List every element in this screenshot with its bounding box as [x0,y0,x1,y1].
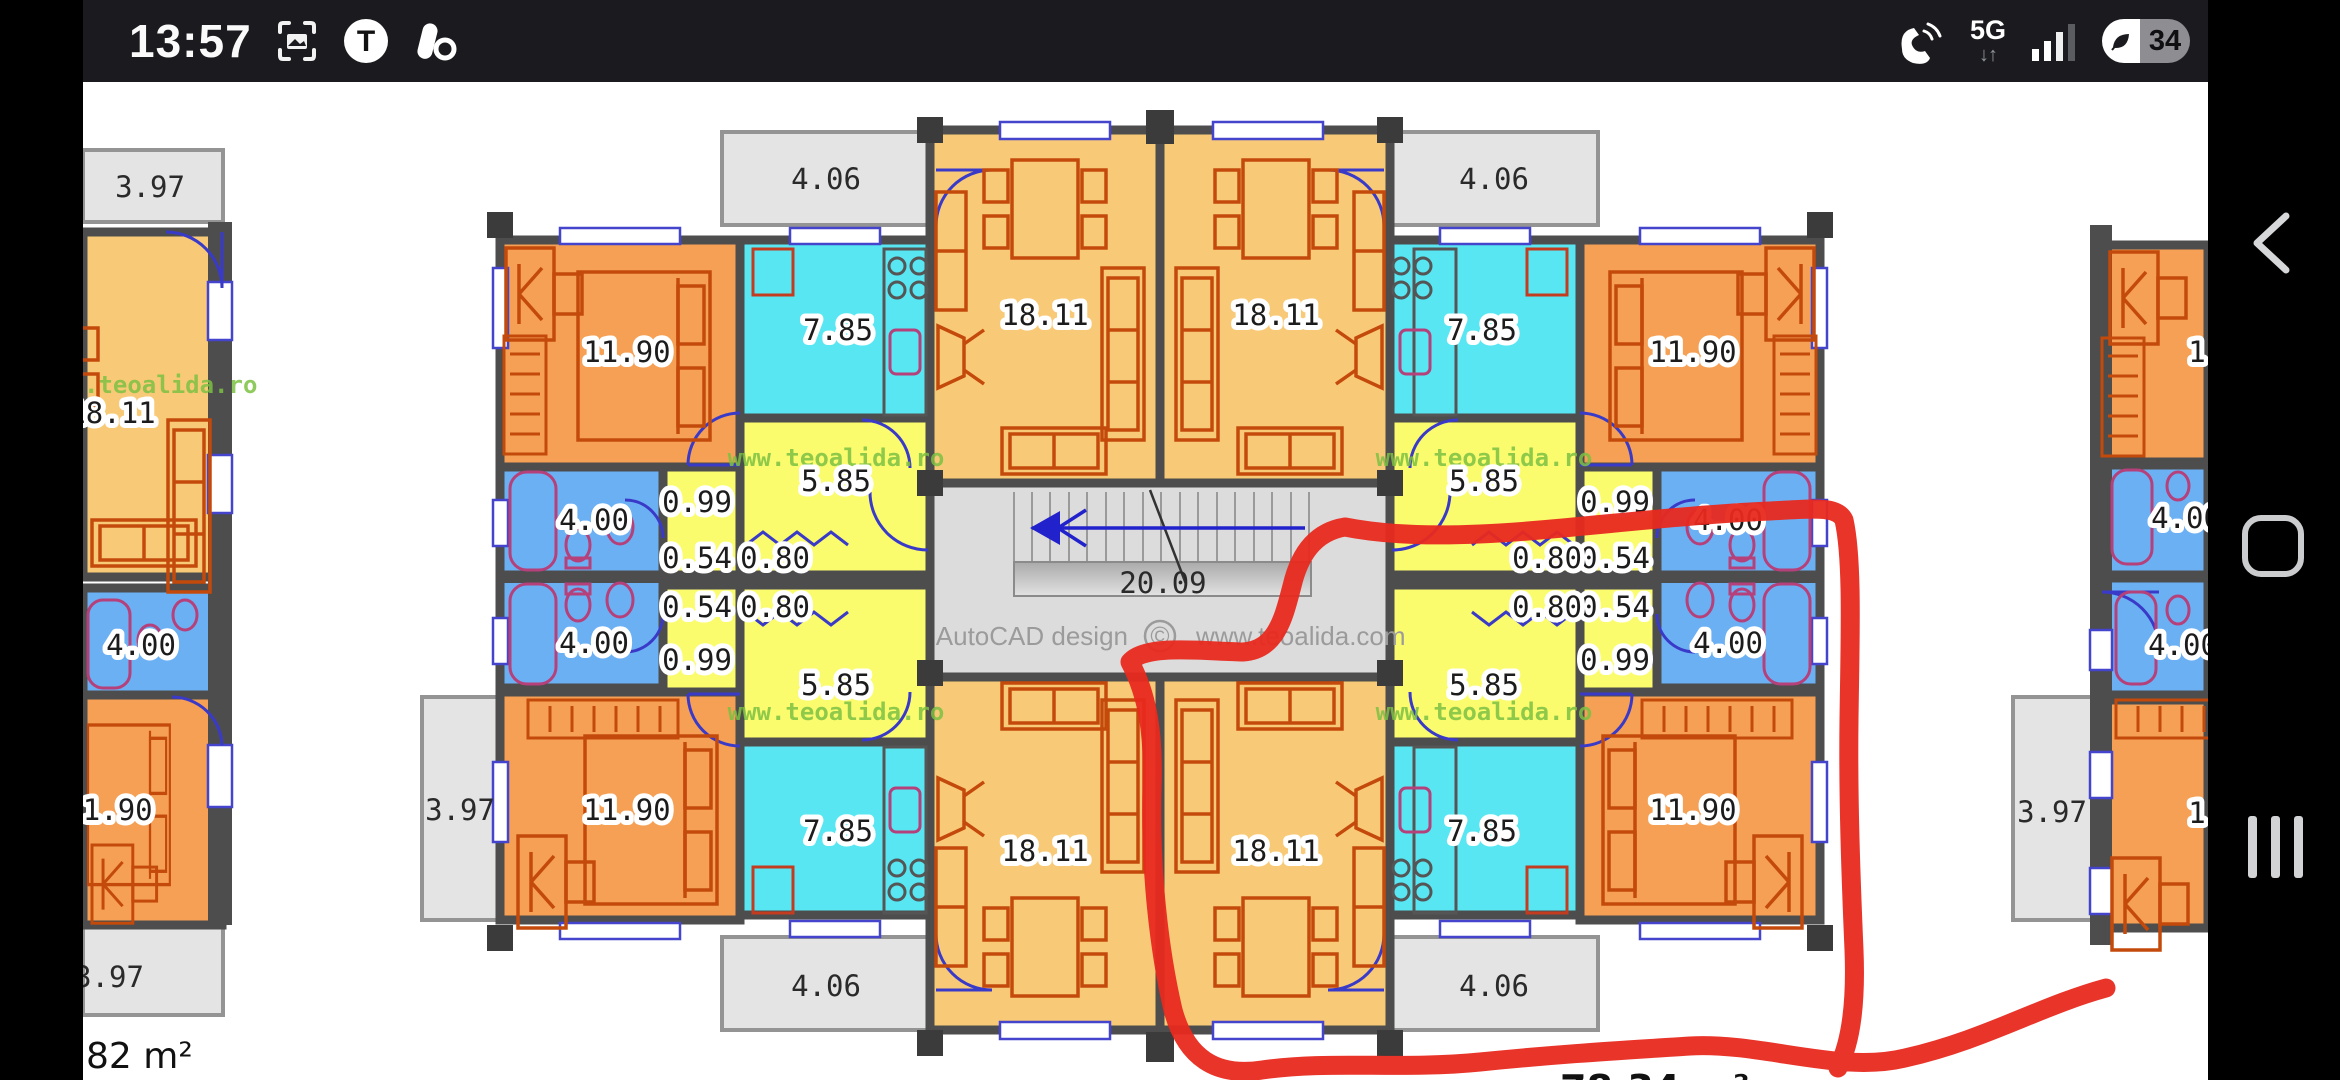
svg-text:7.85: 7.85 [1447,814,1517,848]
svg-text:AutoCAD design: AutoCAD design [936,621,1128,651]
svg-text:0.99: 0.99 [662,485,732,519]
svg-text:18.11: 18.11 [1001,298,1088,332]
svg-text:.teoalida.ro: .teoalida.ro [84,371,257,399]
svg-text:11.90: 11.90 [1649,793,1736,827]
svg-text:0.54: 0.54 [1580,541,1650,575]
home-squircle-icon [2239,512,2307,580]
svg-text:0.99: 0.99 [662,643,732,677]
svg-text:7.85: 7.85 [803,814,873,848]
svg-text:0.80: 0.80 [740,590,810,624]
svg-text:11.90: 11.90 [1649,335,1736,369]
battery-percent: 34 [2140,19,2190,63]
floorplan-image[interactable]: www.teoalida.ro www.teoalida.ro www.teoa… [0,0,2340,1080]
svg-text:5.85: 5.85 [1449,464,1519,498]
svg-text:3.97: 3.97 [425,793,495,827]
power-saving-leaf-icon [2102,19,2140,63]
svg-text:5.85: 5.85 [801,668,871,702]
wifi-call-icon [1894,17,1946,65]
svg-text:7.85: 7.85 [803,313,873,347]
svg-text:4.06: 4.06 [1459,162,1529,196]
svg-text:0.80: 0.80 [1512,541,1582,575]
svg-text:0.54: 0.54 [1580,590,1650,624]
svg-text:0.99: 0.99 [1580,643,1650,677]
battery-indicator: 34 [2102,19,2190,63]
svg-text:3.97: 3.97 [115,170,185,204]
svg-text:0.54: 0.54 [662,590,732,624]
bottom-partial-label: 78.34 m² [1560,1067,1750,1080]
svg-text:4.06: 4.06 [791,162,861,196]
recents-bars-icon [2244,812,2308,882]
svg-text:4.06: 4.06 [1459,969,1529,1003]
clock: 13:57 [129,14,252,68]
signal-bars-icon [2030,19,2078,63]
svg-text:11.90: 11.90 [583,335,670,369]
status-bar: 13:57 T [83,0,2208,82]
network-indicator: 5G ↓↑ [1970,17,2006,65]
svg-text:5.85: 5.85 [801,464,871,498]
area-label: 82 m² [86,1036,193,1077]
svg-text:4.00: 4.00 [1693,626,1763,660]
t-app-icon: T [342,17,390,65]
svg-text:20.09: 20.09 [1119,566,1206,600]
left-black-bar [0,82,83,1080]
svg-text:0.54: 0.54 [662,541,732,575]
svg-text:3.97: 3.97 [74,960,144,994]
pills-app-icon [412,17,460,65]
back-chevron-icon [2242,208,2302,278]
svg-text:5.85: 5.85 [1449,668,1519,702]
svg-text:18.11: 18.11 [1001,834,1088,868]
svg-text:4.00: 4.00 [106,628,176,662]
svg-text:4.00: 4.00 [559,503,629,537]
svg-text:7.85: 7.85 [1447,313,1517,347]
svg-text:www.teoalida.ro: www.teoalida.ro [728,698,945,726]
nav-recents-button[interactable] [2244,812,2308,887]
svg-text:0.80: 0.80 [1512,590,1582,624]
svg-text:www.teoalida.ro: www.teoalida.ro [1376,698,1593,726]
svg-text:18.11: 18.11 [1232,834,1319,868]
svg-text:4.06: 4.06 [791,969,861,1003]
svg-text:4.00: 4.00 [2148,628,2218,662]
svg-text:1: 1 [2188,335,2205,369]
screenshot-icon [274,18,320,64]
svg-text:11.90: 11.90 [583,793,670,827]
svg-text:1: 1 [2188,796,2205,830]
nav-back-button[interactable] [2242,208,2302,283]
svg-text:18.11: 18.11 [1232,298,1319,332]
svg-text:4.00: 4.00 [559,626,629,660]
svg-text:0.80: 0.80 [740,541,810,575]
svg-text:T: T [356,25,374,58]
phone-screen: www.teoalida.ro www.teoalida.ro www.teoa… [0,0,2340,1080]
svg-text:3.97: 3.97 [2017,795,2087,829]
nav-home-button[interactable] [2239,512,2307,585]
